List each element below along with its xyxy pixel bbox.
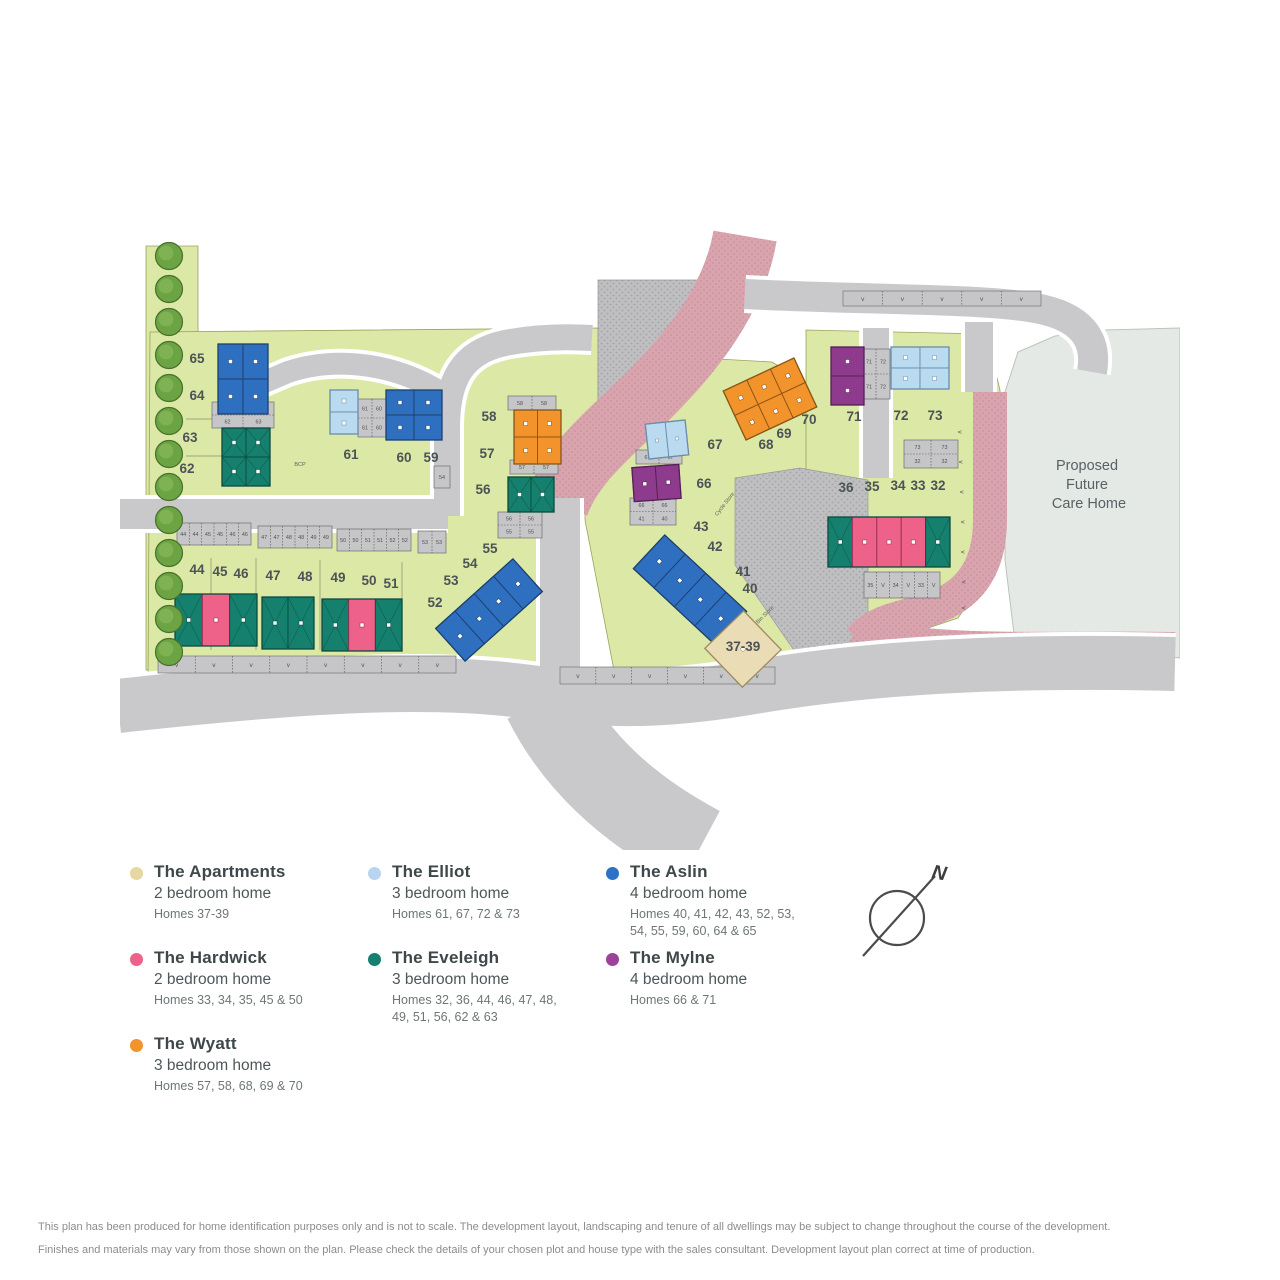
plot-number: 44 xyxy=(189,562,205,577)
bay-number: 41 xyxy=(639,516,645,522)
disclaimer: This plan has been produced for home ide… xyxy=(38,1216,1188,1262)
house-type-name: The Apartments xyxy=(154,862,286,882)
bay-number: 71 xyxy=(866,360,872,366)
building xyxy=(831,347,864,405)
bay-number: 57 xyxy=(543,465,549,471)
bay-number: 63 xyxy=(256,420,262,426)
house-type-name: The Hardwick xyxy=(154,948,303,968)
bay-number: 71 xyxy=(866,385,872,391)
plot-number: 70 xyxy=(801,412,816,427)
window xyxy=(904,356,908,360)
house-type-name: The Eveleigh xyxy=(392,948,557,968)
window xyxy=(254,360,258,364)
window xyxy=(214,618,218,622)
visitor-strip-area xyxy=(158,656,456,673)
plot-number: 61 xyxy=(343,447,359,462)
window xyxy=(426,426,430,430)
bay-number: V xyxy=(881,583,885,589)
bay-number: 55 xyxy=(506,530,512,536)
plot-number: 48 xyxy=(297,569,313,584)
tree-icon xyxy=(159,345,174,360)
bay-number: 53 xyxy=(436,540,442,546)
window xyxy=(187,618,191,622)
plot-number: 46 xyxy=(233,566,249,581)
window xyxy=(229,395,233,399)
bay-number: 46 xyxy=(230,532,236,538)
plot-number: 50 xyxy=(361,573,376,588)
building xyxy=(262,597,314,649)
plot-number: 66 xyxy=(696,476,712,491)
building xyxy=(175,594,257,646)
bay-number: 46 xyxy=(242,532,248,538)
plot-number: 52 xyxy=(427,595,442,610)
window xyxy=(936,540,940,544)
bay-number: V xyxy=(907,583,911,589)
legend-item-hardwick: The Hardwick 2 bedroom home Homes 33, 34… xyxy=(130,948,303,1009)
bay-number: 73 xyxy=(942,445,948,451)
plot-number: 41 xyxy=(735,564,751,579)
window xyxy=(232,441,236,445)
window xyxy=(256,441,260,445)
bay-number: 50 xyxy=(340,538,346,544)
plot-number: 45 xyxy=(212,564,228,579)
window xyxy=(398,426,402,430)
mylne-color-dot-icon xyxy=(606,953,619,966)
bay-number: 58 xyxy=(541,401,547,407)
plot-number: 53 xyxy=(443,573,459,588)
disclaimer-line-1: This plan has been produced for home ide… xyxy=(38,1216,1188,1239)
legend-item-aslin: The Aslin 4 bedroom home Homes 40, 41, 4… xyxy=(606,862,795,940)
house-type-homes: Homes 61, 67, 72 & 73 xyxy=(392,906,520,923)
window xyxy=(256,470,260,474)
bay-number: 47 xyxy=(261,535,267,541)
house-type-desc: 3 bedroom home xyxy=(392,971,557,989)
window xyxy=(398,401,402,405)
bay-number: 52 xyxy=(390,538,396,544)
window xyxy=(904,377,908,381)
plot-number: 62 xyxy=(179,461,194,476)
legend-item-apartments: The Apartments 2 bedroom home Homes 37-3… xyxy=(130,862,286,923)
hardwick-color-dot-icon xyxy=(130,953,143,966)
north-compass-icon: N xyxy=(835,848,970,973)
parking-chip: 56565555 xyxy=(498,512,542,538)
window xyxy=(524,449,528,453)
legend-item-eveleigh: The Eveleigh 3 bedroom home Homes 32, 36… xyxy=(368,948,557,1026)
bay-number: 51 xyxy=(365,538,371,544)
plot-number: 55 xyxy=(482,541,498,556)
building xyxy=(508,477,554,512)
window xyxy=(254,395,258,399)
building xyxy=(386,390,442,440)
bay-number: 60 xyxy=(376,426,382,432)
window xyxy=(273,621,277,625)
bay-number: 49 xyxy=(323,535,329,541)
bay-number: 53 xyxy=(422,540,428,546)
elliot-color-dot-icon xyxy=(368,867,381,880)
bay-number: 49 xyxy=(311,535,317,541)
bay-number: 48 xyxy=(286,535,292,541)
bay-number: 50 xyxy=(353,538,359,544)
bay-number: 61 xyxy=(362,426,368,432)
plot-number: 42 xyxy=(707,539,722,554)
bay-number: 33 xyxy=(918,583,924,589)
house-type-homes: Homes 37-39 xyxy=(154,906,286,923)
window xyxy=(666,480,670,484)
visitor-strip: vvvvvvvv xyxy=(158,656,456,673)
plot-number: 63 xyxy=(182,430,198,445)
tree-icon xyxy=(159,477,174,492)
legend-item-mylne: The Mylne 4 bedroom home Homes 66 & 71 xyxy=(606,948,747,1009)
window xyxy=(360,623,364,627)
tree-icon xyxy=(159,312,174,327)
parking-chip: 61606160 xyxy=(358,399,386,437)
bay-number: 72 xyxy=(880,385,886,391)
plot-number: 37-39 xyxy=(726,639,761,654)
bay-number: 56 xyxy=(528,517,534,523)
plot-number: 36 xyxy=(838,480,854,495)
house-type-desc: 2 bedroom home xyxy=(154,885,286,903)
window xyxy=(342,421,346,425)
plot-number: 67 xyxy=(707,437,722,452)
parking-chip: 54 xyxy=(434,466,450,488)
tree-icon xyxy=(159,444,174,459)
bay-number: 66 xyxy=(662,503,668,509)
plot-number: 64 xyxy=(189,388,205,403)
bay-number: 54 xyxy=(439,475,445,481)
tree-icon xyxy=(159,246,174,261)
bay-number: 47 xyxy=(274,535,280,541)
house-type-homes: Homes 66 & 71 xyxy=(630,992,747,1009)
visitor-strip: vvvvv xyxy=(843,291,1041,306)
house-type-homes: Homes 33, 34, 35, 45 & 50 xyxy=(154,992,303,1009)
care-home-parcel xyxy=(1005,328,1180,658)
house-type-name: The Mylne xyxy=(630,948,747,968)
bay-number: 32 xyxy=(915,459,921,465)
window xyxy=(547,422,551,426)
care-home-area xyxy=(1005,328,1180,658)
house-type-desc: 3 bedroom home xyxy=(154,1057,303,1075)
window xyxy=(933,356,937,360)
plot-number: 40 xyxy=(742,581,757,596)
window xyxy=(846,389,850,393)
bay-number: 61 xyxy=(362,407,368,413)
building xyxy=(514,410,561,464)
window xyxy=(541,493,545,497)
plot-number: 68 xyxy=(758,437,774,452)
plot-number: 69 xyxy=(776,426,791,441)
plot-number: 43 xyxy=(693,519,709,534)
house-type-desc: 2 bedroom home xyxy=(154,971,303,989)
window xyxy=(643,482,647,486)
bay-number: 51 xyxy=(377,538,383,544)
window xyxy=(232,470,236,474)
plot-number: 32 xyxy=(930,478,945,493)
house-type-homes: Homes 40, 41, 42, 43, 52, 53, 54, 55, 59… xyxy=(630,906,795,940)
bay-number: 58 xyxy=(517,401,523,407)
north-label: N xyxy=(930,861,949,885)
tree-icon xyxy=(159,642,174,657)
plot-number: 33 xyxy=(910,478,926,493)
house-type-name: The Wyatt xyxy=(154,1034,303,1054)
plot-number: 65 xyxy=(189,351,205,366)
window xyxy=(241,618,245,622)
bay-number: 48 xyxy=(298,535,304,541)
wyatt-color-dot-icon xyxy=(130,1039,143,1052)
legend-item-wyatt: The Wyatt 3 bedroom home Homes 57, 58, 6… xyxy=(130,1034,303,1095)
bay-number: 60 xyxy=(376,407,382,413)
plot-number: 54 xyxy=(462,556,478,571)
window xyxy=(675,437,678,440)
bay-number: 32 xyxy=(942,459,948,465)
window xyxy=(933,377,937,381)
bay-number: 45 xyxy=(217,532,223,538)
parking-chip: 505051515252 xyxy=(337,529,411,551)
window xyxy=(426,401,430,405)
building xyxy=(330,390,358,434)
house-type-desc: 4 bedroom home xyxy=(630,885,795,903)
parking-chip: 35V34V33V xyxy=(864,572,940,598)
house-type-desc: 4 bedroom home xyxy=(630,971,747,989)
window xyxy=(655,439,658,442)
aslin-color-dot-icon xyxy=(606,867,619,880)
tree-icon xyxy=(159,543,174,558)
building xyxy=(322,599,402,651)
eveleigh-color-dot-icon xyxy=(368,953,381,966)
tree-icon xyxy=(159,378,174,393)
plot-number: 49 xyxy=(330,570,345,585)
tree-icon xyxy=(159,411,174,426)
parking-chip: 71727172 xyxy=(862,349,890,399)
parking-chip: 5858 xyxy=(508,396,556,410)
parking-chip: 474748484949 xyxy=(258,526,332,548)
window xyxy=(299,621,303,625)
window xyxy=(863,540,867,544)
plot-number: 35 xyxy=(864,479,880,494)
bay-number: 52 xyxy=(402,538,408,544)
window xyxy=(887,540,891,544)
window xyxy=(846,360,850,364)
plot-number: 72 xyxy=(893,408,908,423)
window xyxy=(518,493,522,497)
tree-icon xyxy=(159,510,174,525)
plot-number: 60 xyxy=(396,450,411,465)
building xyxy=(222,428,270,486)
building xyxy=(828,517,950,567)
window xyxy=(524,422,528,426)
house-type-homes: Homes 32, 36, 44, 46, 47, 48, 49, 51, 56… xyxy=(392,992,557,1026)
building xyxy=(632,464,681,501)
bay-number: 44 xyxy=(193,532,199,538)
bay-number: 72 xyxy=(880,360,886,366)
tree-icon xyxy=(159,576,174,591)
plot-number: 73 xyxy=(927,408,943,423)
window xyxy=(911,540,915,544)
bcp-label: BCP xyxy=(294,462,306,468)
bay-number: V xyxy=(932,583,936,589)
window xyxy=(333,623,337,627)
parking-chip: 444445454646 xyxy=(177,523,251,545)
building xyxy=(891,347,949,389)
bay-number: 57 xyxy=(519,465,525,471)
bay-number: 55 xyxy=(528,530,534,536)
bay-number: 66 xyxy=(639,503,645,509)
window xyxy=(387,623,391,627)
parking-chip: 5353 xyxy=(418,531,446,553)
house-type-name: The Aslin xyxy=(630,862,795,882)
bay-number: 34 xyxy=(893,583,899,589)
building xyxy=(218,344,268,414)
site-plan-map: 4444454546464747484849495050515152525353… xyxy=(120,230,1180,850)
tree-icon xyxy=(159,609,174,624)
bay-number: 45 xyxy=(205,532,211,538)
plot-number: 47 xyxy=(265,568,280,583)
bay-number: 56 xyxy=(506,517,512,523)
plot-number: 58 xyxy=(481,409,497,424)
window xyxy=(342,399,346,403)
plot-number: 34 xyxy=(890,478,906,493)
apartments-color-dot-icon xyxy=(130,867,143,880)
building xyxy=(645,420,688,459)
house-type-name: The Elliot xyxy=(392,862,520,882)
window xyxy=(229,360,233,364)
bay-number: 40 xyxy=(662,516,668,522)
legend-item-elliot: The Elliot 3 bedroom home Homes 61, 67, … xyxy=(368,862,520,923)
bay-number: 62 xyxy=(225,420,231,426)
parking-chip: 73733232 xyxy=(904,440,958,468)
house-type-desc: 3 bedroom home xyxy=(392,885,520,903)
window xyxy=(838,540,842,544)
bay-number: 35 xyxy=(867,583,873,589)
disclaimer-line-2: Finishes and materials may vary from tho… xyxy=(38,1239,1188,1262)
tree-icon xyxy=(159,279,174,294)
plot-number: 71 xyxy=(846,409,862,424)
plot-number: 59 xyxy=(423,450,438,465)
plot-number: 56 xyxy=(475,482,491,497)
bay-number: 73 xyxy=(915,445,921,451)
house-type-homes: Homes 57, 58, 68, 69 & 70 xyxy=(154,1078,303,1095)
bay-number: 44 xyxy=(180,532,186,538)
plot-number: 51 xyxy=(383,576,399,591)
plot-number: 57 xyxy=(479,446,494,461)
window xyxy=(547,449,551,453)
